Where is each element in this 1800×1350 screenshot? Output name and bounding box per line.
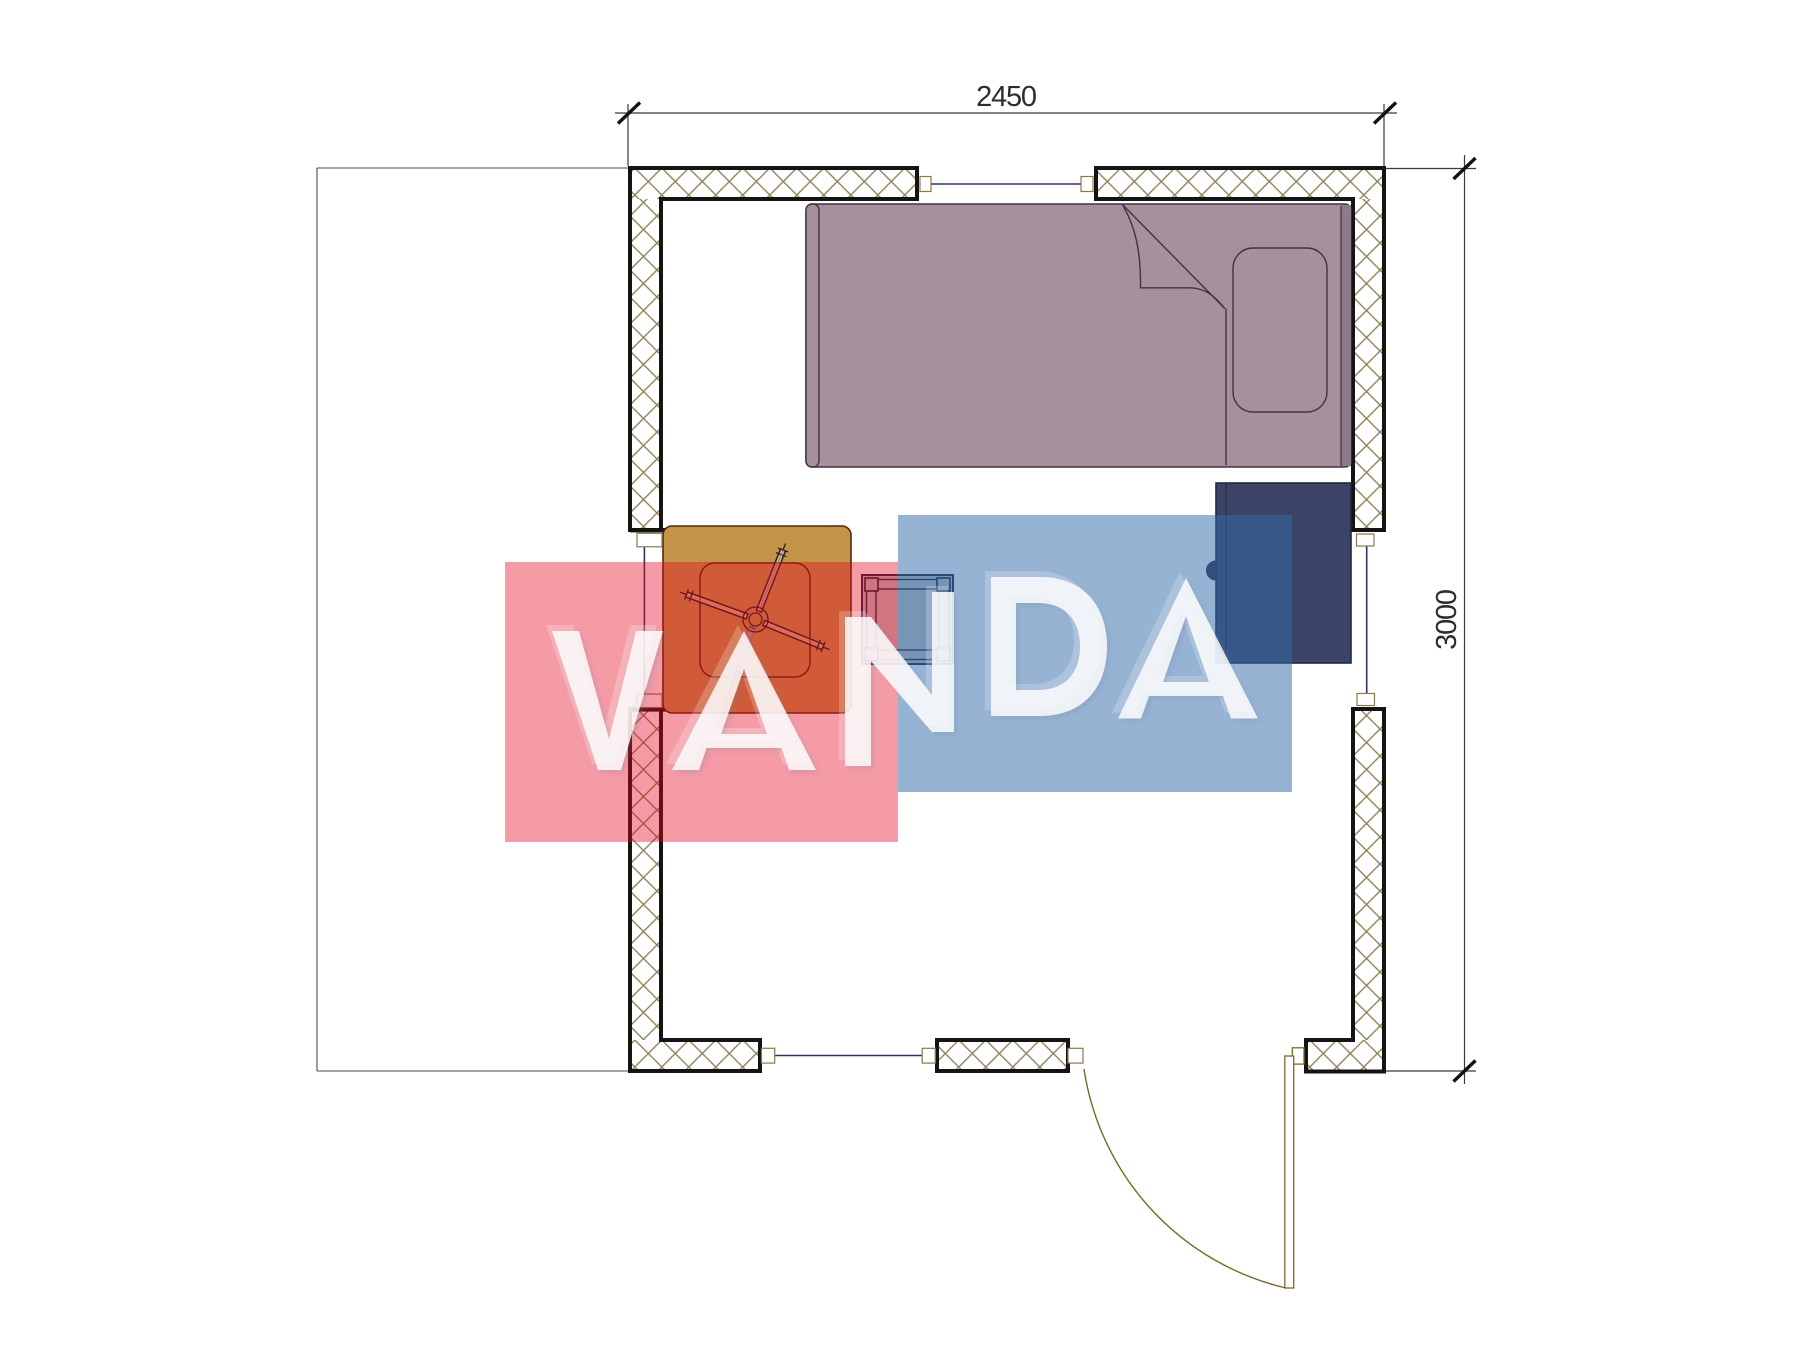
svg-text:3000: 3000 (1431, 590, 1463, 650)
svg-text:2450: 2450 (976, 81, 1036, 113)
